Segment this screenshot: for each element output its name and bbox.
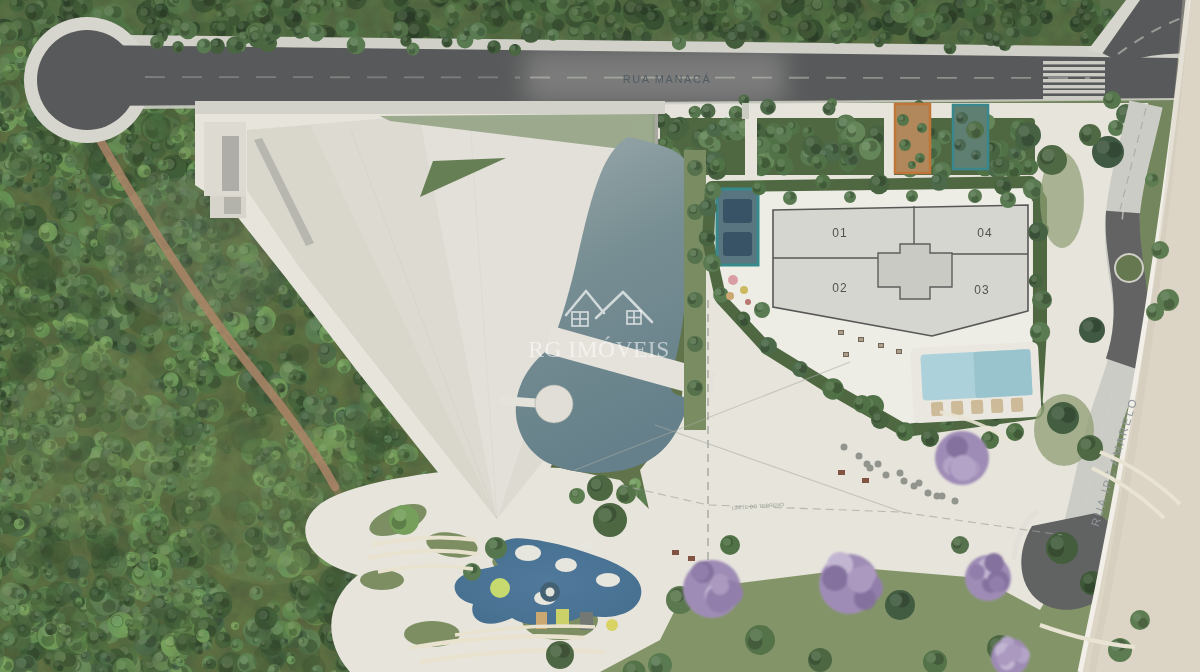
svg-text:RG IMÓVEIS: RG IMÓVEIS (528, 336, 669, 362)
